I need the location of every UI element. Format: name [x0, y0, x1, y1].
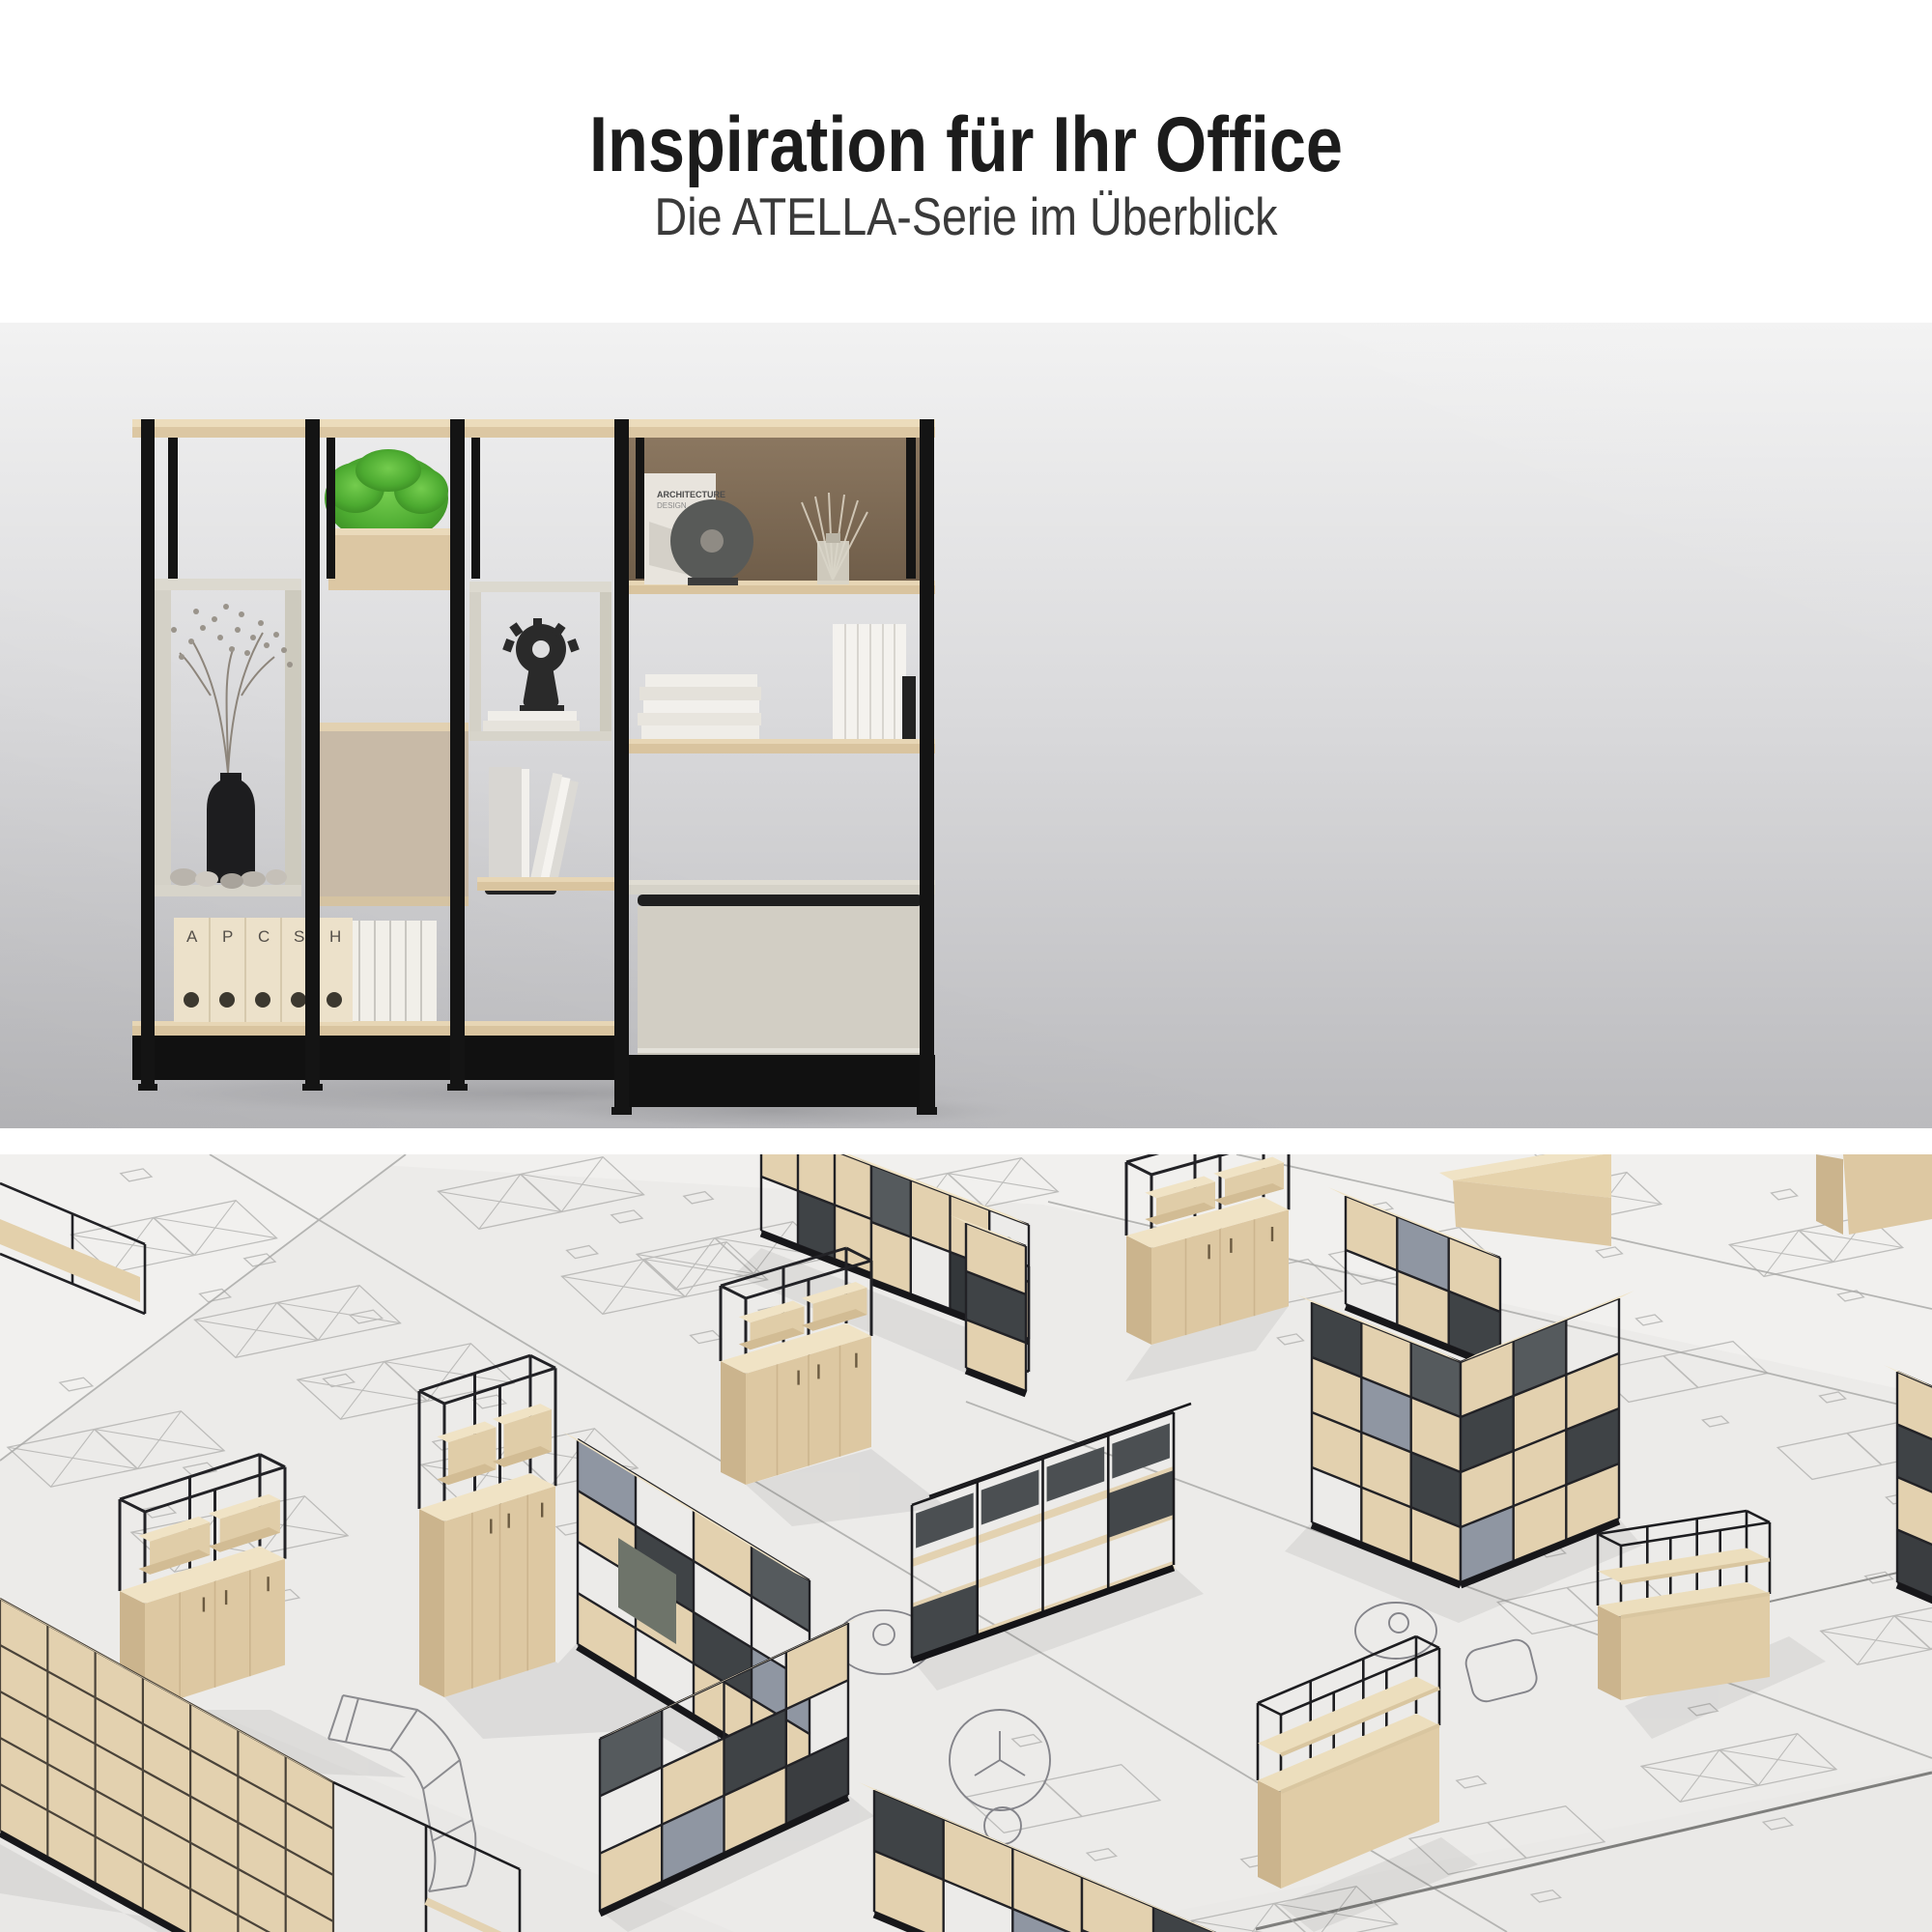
svg-text:A: A	[186, 927, 198, 946]
svg-text:C: C	[258, 927, 270, 946]
svg-text:H: H	[329, 927, 341, 946]
svg-text:S: S	[294, 927, 304, 946]
svg-text:P: P	[222, 927, 233, 946]
svg-text:Inspiration für Ihr Office: Inspiration für Ihr Office	[589, 101, 1343, 188]
svg-text:DESIGN: DESIGN	[657, 501, 687, 510]
svg-text:Die ATELLA-Serie im Überblick: Die ATELLA-Serie im Überblick	[655, 186, 1278, 246]
svg-text:ARCHITECTURE: ARCHITECTURE	[657, 490, 725, 499]
